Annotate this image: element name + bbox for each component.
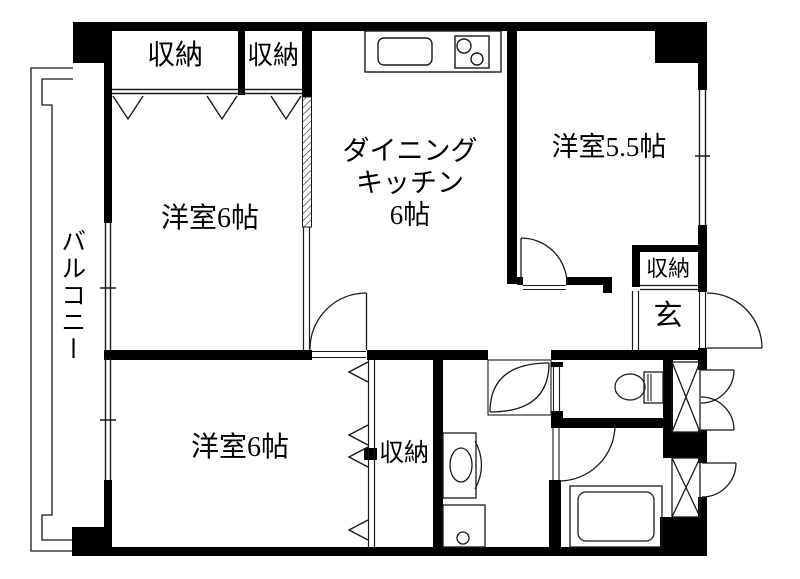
window-lower-left — [100, 357, 116, 480]
kitchen-stove — [455, 36, 489, 68]
floorplan: バルコニー 収納 収納 洋室6帖 ダイニング キッチン 6帖 洋室5.5帖 収納… — [0, 0, 800, 579]
dining-kitchen-label-line2: キッチン — [330, 168, 490, 200]
bedroom-lower-left-label: 洋室6帖 — [160, 432, 320, 464]
closet-top-right-label: 収納 — [243, 41, 303, 71]
toilet — [615, 372, 663, 403]
dining-kitchen-label: ダイニング キッチン 6帖 — [330, 136, 490, 232]
door-bathroom — [553, 425, 615, 481]
bedroom-upper-left-label: 洋室6帖 — [130, 203, 290, 235]
closet-top-doors — [112, 90, 302, 120]
balcony-label: バルコニー — [56, 228, 85, 363]
bathtub — [570, 486, 662, 547]
door-bedroom-lower — [310, 293, 367, 358]
dining-kitchen-label-line1: ダイニング — [330, 136, 490, 168]
washing-machine-pan — [443, 505, 485, 547]
door-washroom-folding — [488, 360, 551, 415]
window-right — [695, 90, 710, 225]
floorplan-drawing — [0, 0, 800, 579]
entrance-label: 玄 — [636, 300, 700, 333]
pipe-shaft-lower — [672, 458, 700, 517]
door-entrance — [700, 292, 763, 348]
kitchen-sink — [378, 38, 432, 65]
vanity-sink — [443, 433, 482, 498]
door-bedroom-right — [521, 238, 567, 290]
closet-entrance-label: 収納 — [636, 256, 700, 281]
door-wc — [554, 367, 560, 411]
window-upper-left — [100, 223, 116, 350]
closet-top-left-label: 収納 — [112, 40, 238, 72]
walls — [72, 22, 707, 556]
bedroom-right-label: 洋室5.5帖 — [527, 132, 691, 163]
kitchen-counter — [365, 31, 501, 72]
dining-kitchen-label-line3: 6帖 — [330, 200, 490, 232]
closet-lower-label: 収納 — [374, 440, 434, 469]
pipe-shaft-upper — [672, 362, 700, 432]
hatched-partition — [303, 97, 312, 350]
